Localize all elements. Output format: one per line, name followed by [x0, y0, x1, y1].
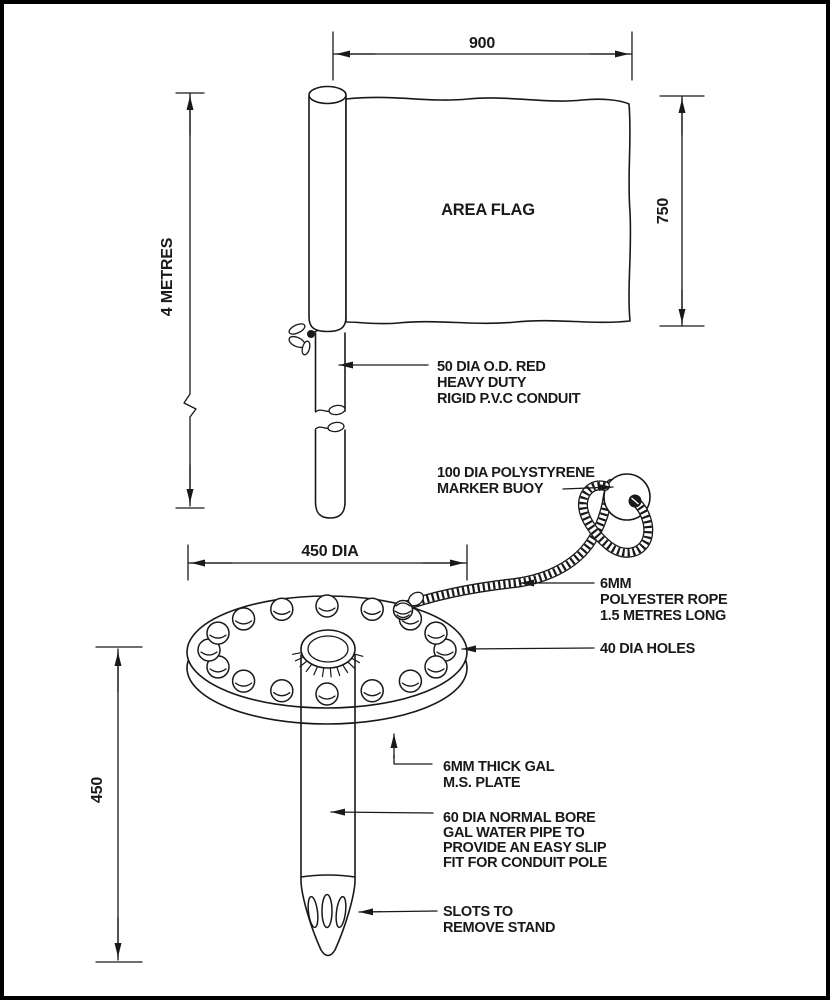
- annotation-conduit-line2: HEAVY DUTY: [437, 375, 527, 391]
- dimension-flag-height: 750: [655, 96, 704, 326]
- annotation-rope-line1: 6MM: [600, 576, 632, 592]
- annotation-pipe-line2: GAL WATER PIPE TO: [443, 825, 585, 841]
- dimension-pole-height: 4 METRES: [159, 93, 204, 508]
- break-loop: [327, 421, 344, 432]
- annotation-pipe-line3: PROVIDE AN EASY SLIP: [443, 840, 607, 856]
- plate-hole: [425, 656, 447, 678]
- annotation-conduit-line1: 50 DIA O.D. RED: [437, 359, 546, 375]
- dimension-lines: [176, 93, 204, 508]
- conduit-pole-lower: [316, 333, 346, 518]
- plate-hole: [207, 622, 229, 644]
- pole-bottom-segment: [316, 430, 346, 518]
- plate-hole: [316, 683, 338, 705]
- leader-slots: [359, 911, 437, 912]
- plate-hole: [271, 680, 293, 702]
- dimension-flag-width: 900: [333, 32, 632, 80]
- annotation-rope: 6MM POLYESTER ROPE 1.5 METRES LONG: [520, 576, 728, 624]
- annotation-rope-line2: POLYESTER ROPE: [600, 592, 728, 608]
- dimension-lines: [96, 647, 142, 962]
- technical-drawing: AREA FLAG 900 750: [4, 4, 826, 996]
- annotation-slots-line1: SLOTS TO: [443, 904, 513, 920]
- annotation-buoy-line2: MARKER BUOY: [437, 481, 544, 497]
- leader-plate-elbow: [394, 755, 432, 764]
- plate-hole: [425, 622, 447, 644]
- flag-pole-assembly: AREA FLAG: [287, 87, 630, 519]
- annotation-pipe-line4: FIT FOR CONDUIT POLE: [443, 855, 608, 871]
- annotation-holes-line1: 40 DIA HOLES: [600, 641, 696, 657]
- pole-top-cap: [309, 87, 346, 104]
- annotation-slots-line2: REMOVE STAND: [443, 920, 555, 936]
- annotation-plate-line1: 6MM THICK GAL: [443, 759, 555, 775]
- leader-holes: [462, 648, 594, 649]
- pole-body: [309, 96, 346, 332]
- dim-flag-width-label: 900: [469, 35, 495, 52]
- dimension-plate-diameter: 450 DIA: [188, 543, 467, 580]
- annotation-plate-line2: M.S. PLATE: [443, 775, 521, 791]
- annotation-conduit: 50 DIA O.D. RED HEAVY DUTY RIGID P.V.C C…: [339, 359, 581, 407]
- dim-pole-height-label: 4 METRES: [159, 237, 176, 316]
- plate-hole: [233, 608, 255, 630]
- break-zigzag: [184, 394, 196, 417]
- base-plate: [187, 595, 467, 876]
- dim-stand-height-label: 450: [89, 777, 106, 803]
- annotation-plate: 6MM THICK GAL M.S. PLATE: [394, 734, 555, 791]
- plate-hole: [361, 680, 383, 702]
- plate-hole: [233, 670, 255, 692]
- annotation-holes: 40 DIA HOLES: [462, 641, 696, 657]
- plate-hole: [361, 598, 383, 620]
- stand-pipe: [301, 875, 355, 956]
- cone-top-edge: [301, 875, 355, 877]
- annotation-pipe-line1: 60 DIA NORMAL BORE: [443, 810, 596, 826]
- annotation-conduit-line3: RIGID P.V.C CONDUIT: [437, 391, 581, 407]
- break-loop: [328, 404, 345, 415]
- plate-hole: [316, 595, 338, 617]
- leader-pipe: [331, 812, 433, 813]
- bow-knot: [307, 330, 315, 338]
- plate-hole: [271, 598, 293, 620]
- dim-flag-height-label: 750: [655, 198, 672, 224]
- annotation-buoy-line1: 100 DIA POLYSTYRENE: [437, 465, 595, 481]
- plate-hole: [399, 670, 421, 692]
- dim-plate-diameter-label: 450 DIA: [301, 543, 359, 560]
- annotation-slots: SLOTS TO REMOVE STAND: [359, 904, 555, 936]
- annotation-pipe: 60 DIA NORMAL BORE GAL WATER PIPE TO PRO…: [331, 810, 608, 871]
- annotation-rope-line3: 1.5 METRES LONG: [600, 608, 726, 624]
- stand-slot: [322, 895, 332, 928]
- dimension-stand-height: 450: [89, 647, 142, 962]
- drawing-sheet: AREA FLAG 900 750: [0, 0, 830, 1000]
- bow-loop: [288, 322, 307, 336]
- area-flag-label: AREA FLAG: [441, 201, 535, 219]
